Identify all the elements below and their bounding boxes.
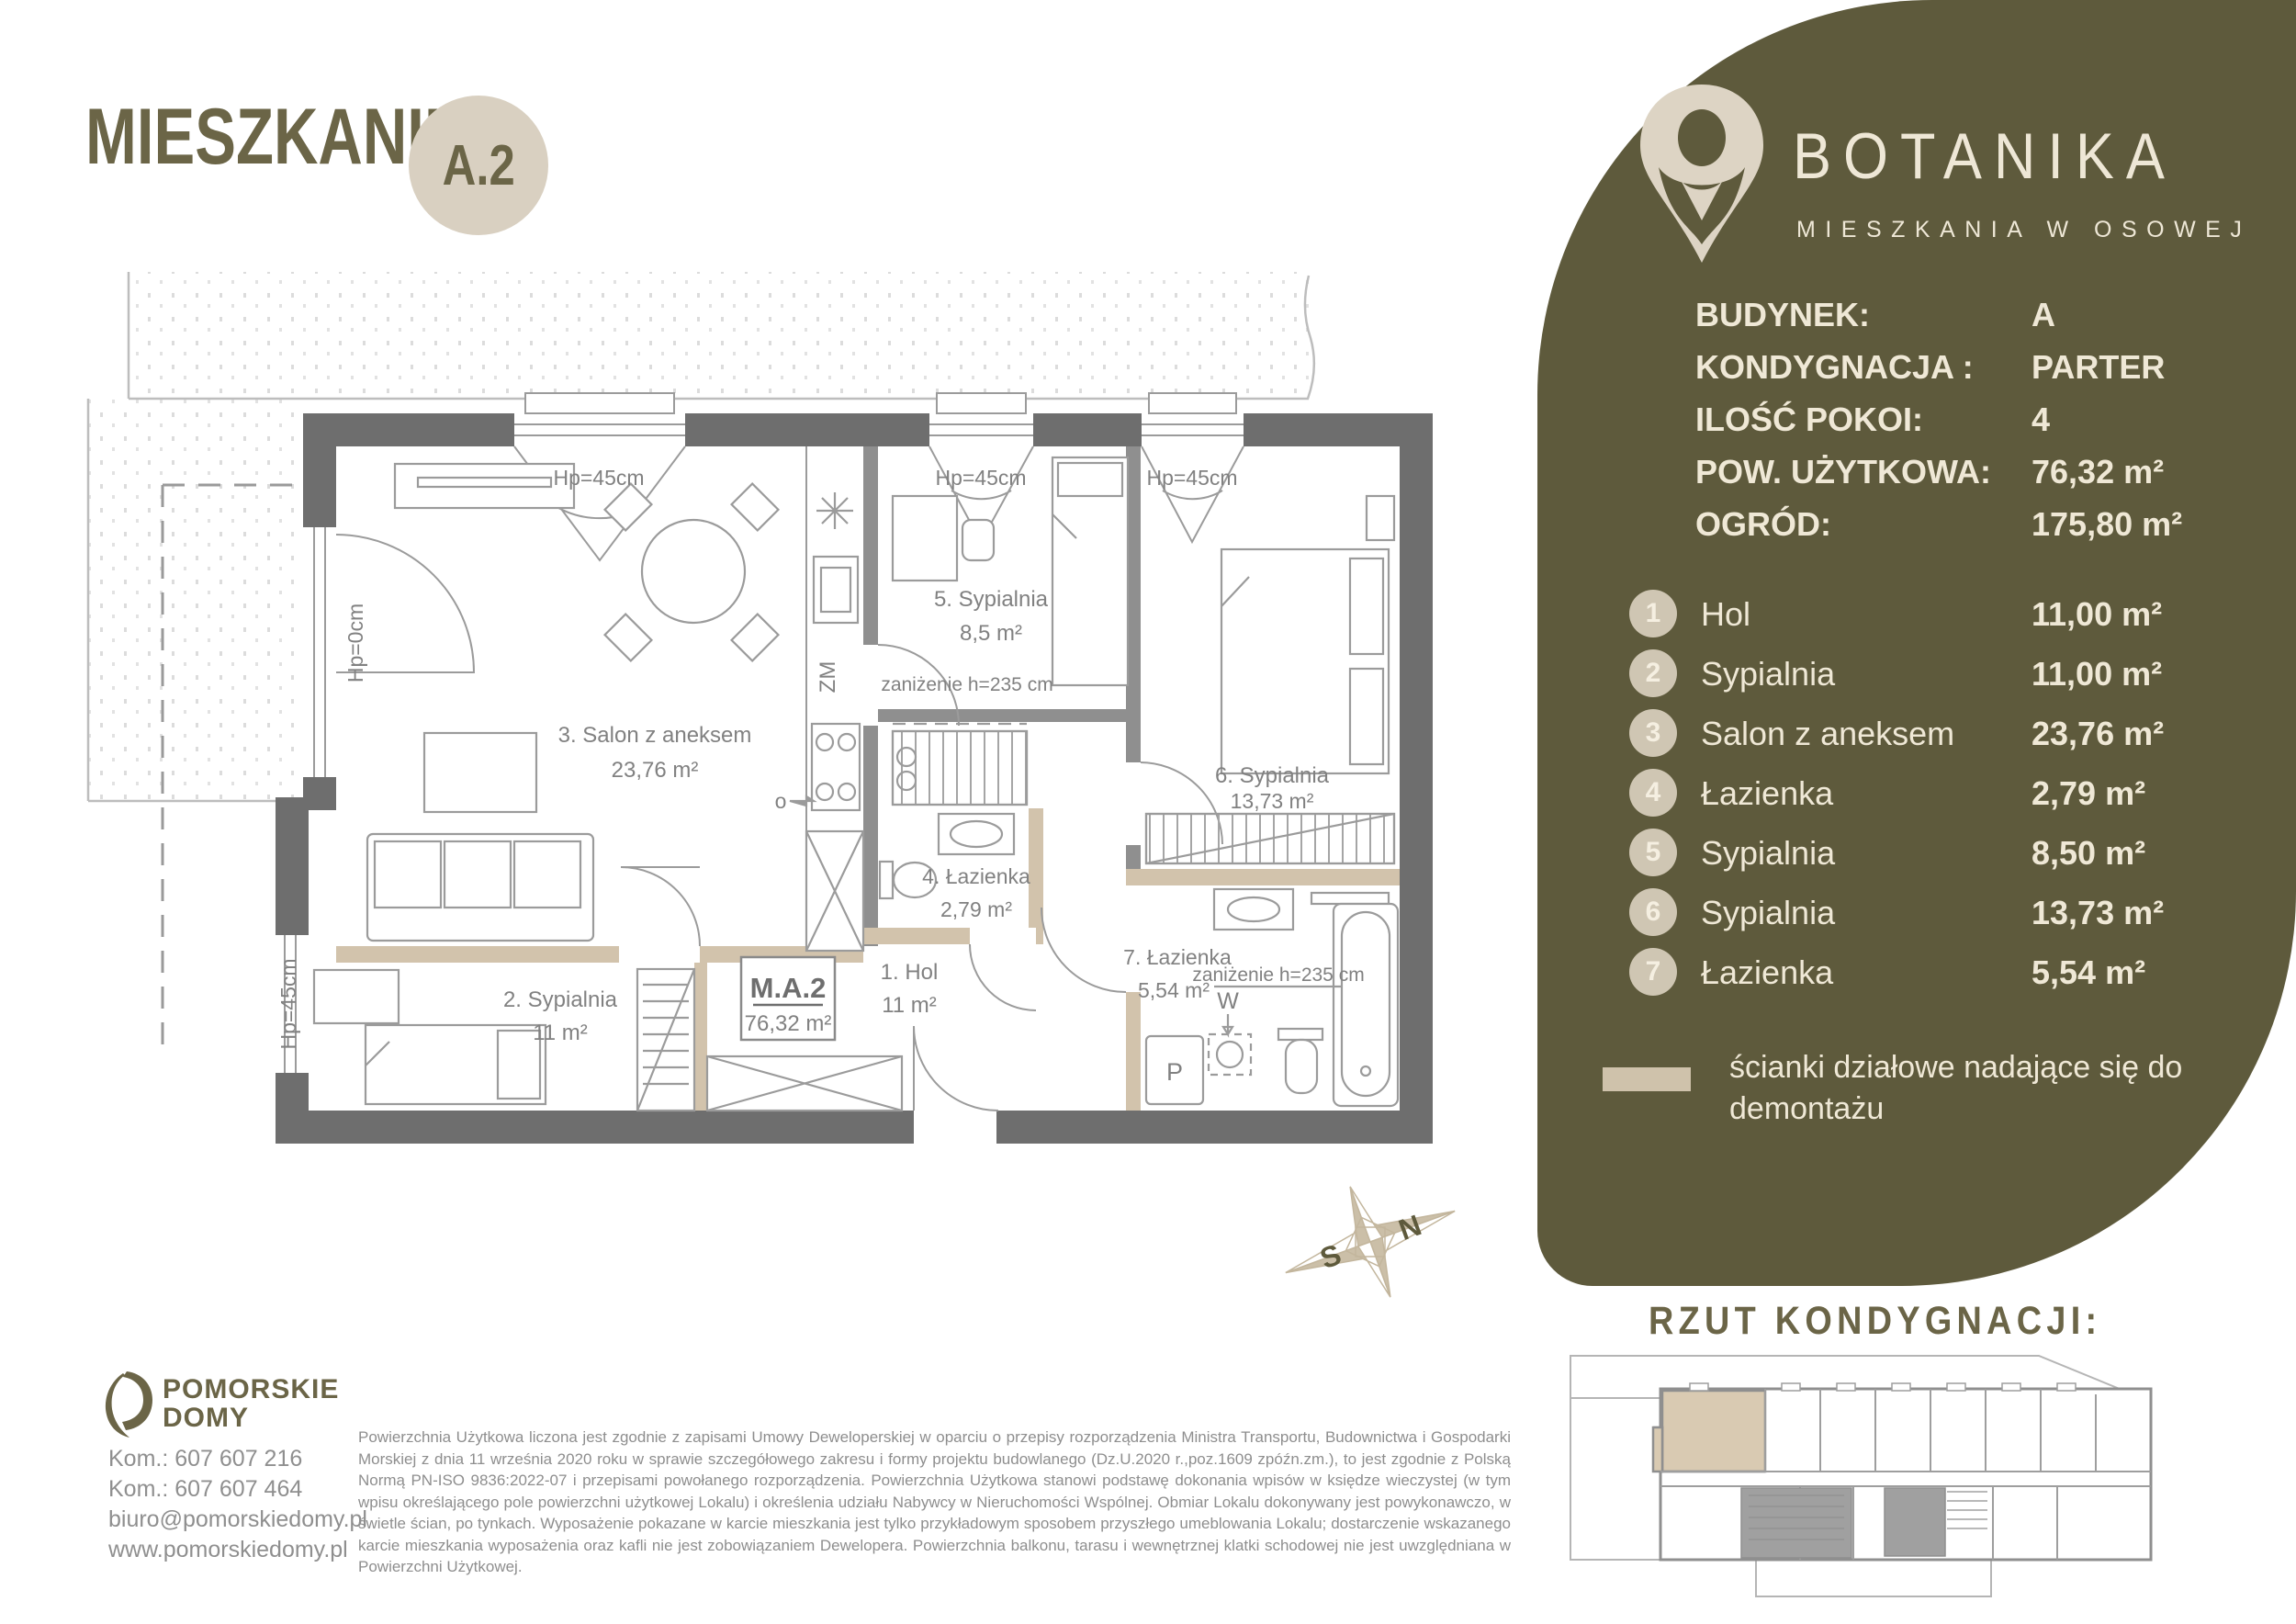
- legend-swatch: [1603, 1067, 1691, 1091]
- hp0-left: Hp=0cm: [343, 603, 367, 682]
- svg-text:8,5 m²: 8,5 m²: [960, 621, 1022, 646]
- legal-disclaimer: Powierzchnia Użytkowa liczona jest zgodn…: [358, 1427, 1511, 1578]
- hp45-living: Hp=45cm: [553, 466, 644, 490]
- svg-text:23,76 m²: 23,76 m²: [612, 758, 699, 783]
- room-list-item: 4 Łazienka 2,79 m²: [1537, 769, 2296, 829]
- room-list-item: 5 Sypialnia 8,50 m²: [1537, 829, 2296, 888]
- spec-value: 76,32 m²: [2032, 453, 2164, 491]
- room-name: Sypialnia: [1701, 894, 1835, 932]
- spec-row: KONDYGNACJA : PARTER: [1537, 348, 2296, 400]
- room-number-badge: 5: [1629, 829, 1677, 876]
- unit-badge: A.2: [409, 96, 548, 235]
- svg-text:1. Hol: 1. Hol: [881, 960, 939, 985]
- spec-value: A: [2032, 296, 2055, 334]
- spec-value: PARTER: [2032, 348, 2165, 387]
- svg-text:2. Sypialnia: 2. Sypialnia: [503, 987, 618, 1012]
- unit-area: 76,32 m²: [745, 1011, 832, 1036]
- lowering-bath7: zaniżenie h=235 cm: [1192, 964, 1364, 986]
- svg-text:13,73 m²: 13,73 m²: [1231, 789, 1314, 813]
- wardrobe-hall-hatched: [637, 969, 694, 1111]
- kitchen: [790, 492, 863, 951]
- nightstand-room6: [1367, 496, 1394, 540]
- spec-row: POW. UŻYTKOWA: 76,32 m²: [1537, 453, 2296, 505]
- wardrobe-room6: [1146, 814, 1394, 863]
- room-name: Salon z aneksem: [1701, 715, 1954, 753]
- room-number-badge: 7: [1629, 948, 1677, 996]
- room-name: Sypialnia: [1701, 834, 1835, 873]
- towel-rail: [1311, 893, 1389, 904]
- room-list-item: 3 Salon z aneksem 23,76 m²: [1537, 709, 2296, 769]
- unit-info-box: M.A.2 76,32 m²: [741, 957, 835, 1040]
- p-label: P: [1166, 1058, 1183, 1086]
- bed-room6: [1221, 549, 1389, 773]
- room-number-badge: 4: [1629, 769, 1677, 817]
- developer-name-line1: POMORSKIE: [163, 1374, 339, 1405]
- spec-value: 4: [2032, 400, 2050, 439]
- room-area: 5,54 m²: [2032, 953, 2145, 992]
- room-list-item: 2 Sypialnia 11,00 m²: [1537, 649, 2296, 709]
- toilet7-bowl: [1286, 1040, 1317, 1093]
- spec-row: ILOŚĆ POKOI: 4: [1537, 400, 2296, 453]
- room-area: 2,79 m²: [2032, 774, 2145, 813]
- toilet4-tank: [880, 862, 893, 898]
- bed-room2: [366, 1025, 546, 1104]
- spec-row: BUDYNEK: A: [1537, 296, 2296, 348]
- svg-text:4. Łazienka: 4. Łazienka: [922, 864, 1030, 888]
- room-number-badge: 2: [1629, 649, 1677, 697]
- room-number-badge: 3: [1629, 709, 1677, 757]
- room-list-item: 6 Sypialnia 13,73 m²: [1537, 888, 2296, 948]
- floor-overview-title: RZUT KONDYGNACJI:: [1649, 1299, 2101, 1344]
- hp45-room6: Hp=45cm: [1146, 466, 1237, 490]
- room-name: Sypialnia: [1701, 655, 1835, 694]
- svg-text:6. Sypialnia: 6. Sypialnia: [1215, 763, 1330, 788]
- room-list-item: 7 Łazienka 5,54 m²: [1537, 948, 2296, 1008]
- legend-text: ścianki działowe nadające się do demonta…: [1729, 1047, 2244, 1130]
- tv: [418, 478, 551, 487]
- wardrobe-lowered: [893, 724, 1027, 805]
- spec-label: OGRÓD:: [1695, 505, 1831, 544]
- compass-icon: N S: [1266, 1156, 1475, 1327]
- spec-value: 175,80 m²: [2032, 505, 2182, 544]
- hp45-left-low: Hp=45cm: [276, 958, 300, 1049]
- lowering-room5: zaniżenie h=235 cm: [881, 674, 1052, 695]
- room-name: Łazienka: [1701, 953, 1833, 992]
- room-area: 11,00 m²: [2032, 595, 2162, 634]
- brand-tagline: MIESZKANIA W OSOWEJ: [1796, 217, 2251, 243]
- svg-text:11 m²: 11 m²: [882, 993, 937, 1018]
- coffee-table: [424, 733, 536, 812]
- developer-logo-icon: [101, 1369, 154, 1440]
- desk-room5: [893, 496, 957, 581]
- svg-text:3. Salon z aneksem: 3. Salon z aneksem: [558, 723, 752, 748]
- o-label: o: [775, 789, 787, 813]
- hp45-room5: Hp=45cm: [935, 466, 1026, 490]
- spec-label: KONDYGNACJA :: [1695, 348, 1974, 387]
- spec-label: BUDYNEK:: [1695, 296, 1870, 334]
- room-name: Hol: [1701, 595, 1750, 634]
- info-panel: BOTANIKA MIESZKANIA W OSOWEJ BUDYNEK: A …: [1537, 0, 2296, 1286]
- floor-overview-plan: [1561, 1343, 2296, 1624]
- brand-name: BOTANIKA: [1793, 119, 2177, 194]
- room-number-badge: 6: [1629, 888, 1677, 936]
- developer-name-line2: DOMY: [163, 1403, 249, 1434]
- wardrobe-hall-x: [707, 1056, 902, 1111]
- building-cores: [1741, 1488, 1945, 1558]
- spec-label: POW. UŻYTKOWA:: [1695, 453, 1991, 491]
- unit-badge-label: A.2: [442, 133, 514, 198]
- svg-text:11 m²: 11 m²: [533, 1021, 588, 1045]
- room-list-item: 1 Hol 11,00 m²: [1537, 590, 2296, 649]
- svg-text:5. Sypialnia: 5. Sypialnia: [934, 587, 1049, 612]
- contact-info: Kom.: 607 607 216 Kom.: 607 607 464 biur…: [108, 1444, 367, 1565]
- bed-room5: [1052, 457, 1128, 685]
- desk-room2: [314, 970, 399, 1023]
- apartment-card-page: M.A.2 76,32 m² 3. Salon z aneksem 23,76 …: [0, 0, 2296, 1624]
- highlighted-unit: [1653, 1391, 1765, 1472]
- spec-label: ILOŚĆ POKOI:: [1695, 400, 1923, 439]
- dining-table: [642, 520, 745, 623]
- unit-label: M.A.2: [750, 972, 827, 1004]
- room-name: Łazienka: [1701, 774, 1833, 813]
- room-area: 11,00 m²: [2032, 655, 2162, 694]
- spec-row: OGRÓD: 175,80 m²: [1537, 505, 2296, 558]
- room-area: 23,76 m²: [2032, 715, 2164, 753]
- brand-pin-icon: [1633, 79, 1771, 267]
- svg-text:2,79 m²: 2,79 m²: [940, 897, 1012, 921]
- zm-label: ZM: [816, 661, 840, 694]
- toilet7-tank: [1278, 1029, 1322, 1040]
- room-number-badge: 1: [1629, 590, 1677, 637]
- sink7: [1214, 889, 1293, 930]
- room-area: 13,73 m²: [2032, 894, 2164, 932]
- fan-box: [1209, 1034, 1251, 1075]
- w-label: W: [1217, 988, 1239, 1014]
- sofa: [367, 834, 593, 941]
- room-area: 8,50 m²: [2032, 834, 2145, 873]
- chair-room5: [962, 520, 994, 560]
